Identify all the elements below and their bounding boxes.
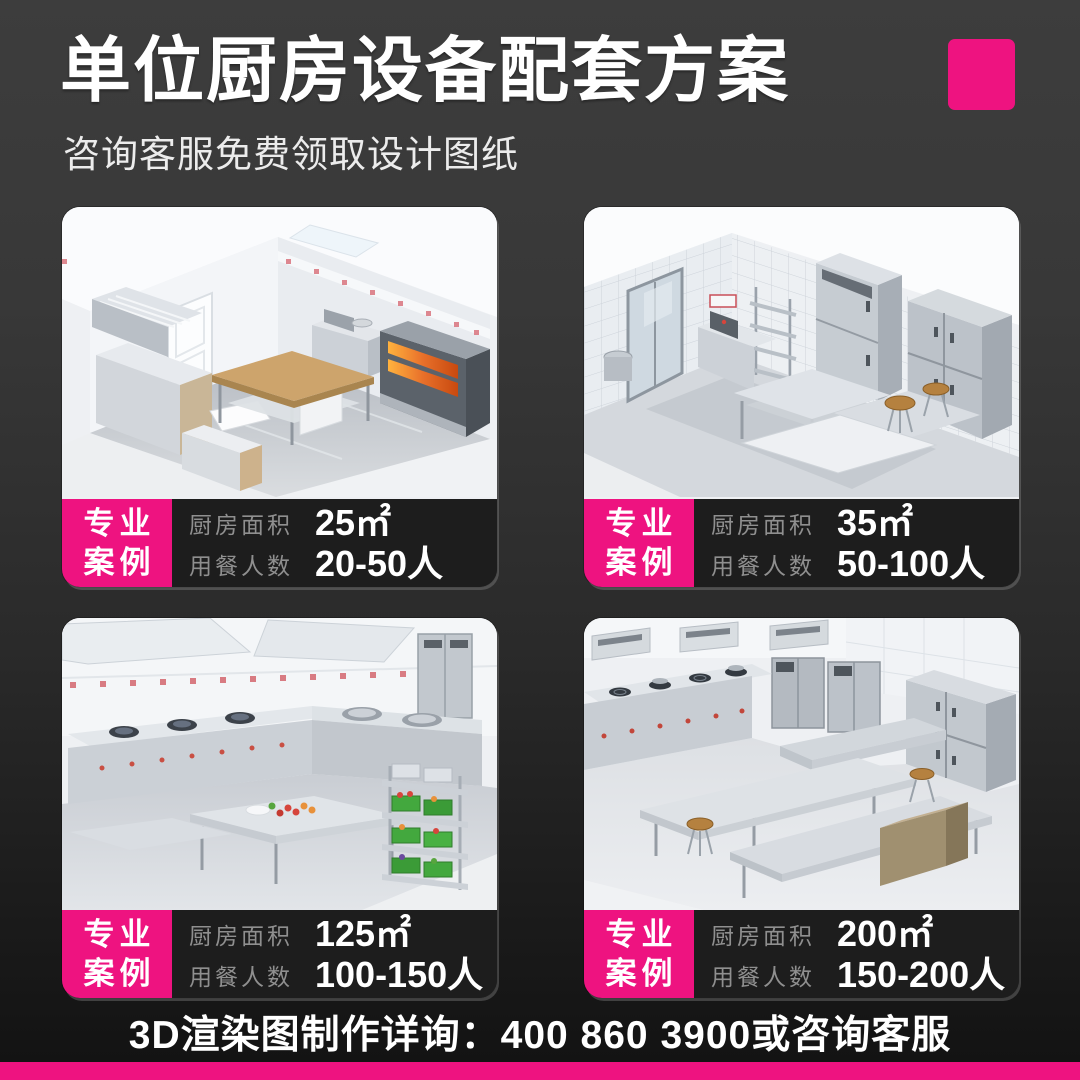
kitchen-area-label: 厨房面积 (189, 506, 301, 540)
case-card-25sqm: 专业 案例 厨房面积 25㎡ 用餐人数 20-50人 (62, 207, 497, 587)
case-card-200sqm: 专业 案例 厨房面积 200㎡ 用餐人数 150-200人 (584, 618, 1019, 998)
kitchen-area-value: 200㎡ (837, 915, 1019, 953)
diners-value: 50-100人 (837, 545, 1019, 583)
diners-value: 20-50人 (315, 545, 497, 583)
kitchen-area-label: 厨房面积 (189, 917, 301, 951)
diners-label: 用餐人数 (189, 547, 301, 581)
badge-line: 专业 (84, 916, 156, 954)
case-card-35sqm: 专业 案例 厨房面积 35㎡ 用餐人数 50-100人 (584, 207, 1019, 587)
case-stats: 厨房面积 125㎡ 用餐人数 100-150人 (172, 910, 497, 998)
badge-line: 专业 (606, 505, 678, 543)
diners-label: 用餐人数 (189, 958, 301, 992)
kitchen-area-label: 厨房面积 (711, 506, 823, 540)
page-title: 单位厨房设备配套方案 (60, 24, 940, 120)
diners-label: 用餐人数 (711, 958, 823, 992)
kitchen-3d-render-35sqm-image (584, 207, 1019, 499)
case-card-125sqm: 专业 案例 厨房面积 125㎡ 用餐人数 100-150人 (62, 618, 497, 998)
badge-line: 案例 (84, 544, 156, 582)
badge-line: 案例 (606, 544, 678, 582)
kitchen-area-value: 25㎡ (315, 504, 497, 542)
case-stats: 厨房面积 35㎡ 用餐人数 50-100人 (694, 499, 1019, 587)
case-info-bar: 专业 案例 厨房面积 200㎡ 用餐人数 150-200人 (584, 910, 1019, 998)
professional-case-badge: 专业 案例 (584, 910, 694, 998)
badge-line: 案例 (606, 955, 678, 993)
professional-case-badge: 专业 案例 (62, 499, 172, 587)
kitchen-equipment-promo-poster: 单位厨房设备配套方案 咨询客服免费领取设计图纸 (0, 0, 1080, 1080)
case-info-bar: 专业 案例 厨房面积 25㎡ 用餐人数 20-50人 (62, 499, 497, 587)
footer-accent-bar (0, 1062, 1080, 1080)
badge-line: 专业 (606, 916, 678, 954)
professional-case-badge: 专业 案例 (584, 499, 694, 587)
professional-case-badge: 专业 案例 (62, 910, 172, 998)
case-info-bar: 专业 案例 厨房面积 125㎡ 用餐人数 100-150人 (62, 910, 497, 998)
case-stats: 厨房面积 200㎡ 用餐人数 150-200人 (694, 910, 1019, 998)
kitchen-3d-render-25sqm-image (62, 207, 497, 499)
badge-line: 专业 (84, 505, 156, 543)
kitchen-area-label: 厨房面积 (711, 917, 823, 951)
page-subtitle: 咨询客服免费领取设计图纸 (63, 124, 519, 178)
diners-label: 用餐人数 (711, 547, 823, 581)
diners-value: 100-150人 (315, 956, 497, 994)
kitchen-area-value: 125㎡ (315, 915, 497, 953)
footer-contact-text: 3D渲染图制作详询：400 860 3900或咨询客服 (0, 1004, 1080, 1060)
accent-square (948, 39, 1015, 110)
kitchen-3d-render-200sqm-image (584, 618, 1019, 910)
kitchen-3d-render-125sqm-image (62, 618, 497, 910)
diners-value: 150-200人 (837, 956, 1019, 994)
badge-line: 案例 (84, 955, 156, 993)
case-info-bar: 专业 案例 厨房面积 35㎡ 用餐人数 50-100人 (584, 499, 1019, 587)
kitchen-area-value: 35㎡ (837, 504, 1019, 542)
kitchen-3d-render-125sqm (62, 618, 497, 910)
kitchen-3d-render-35sqm (584, 207, 1019, 499)
kitchen-3d-render-25sqm (62, 207, 497, 499)
case-stats: 厨房面积 25㎡ 用餐人数 20-50人 (172, 499, 497, 587)
kitchen-3d-render-200sqm (584, 618, 1019, 910)
